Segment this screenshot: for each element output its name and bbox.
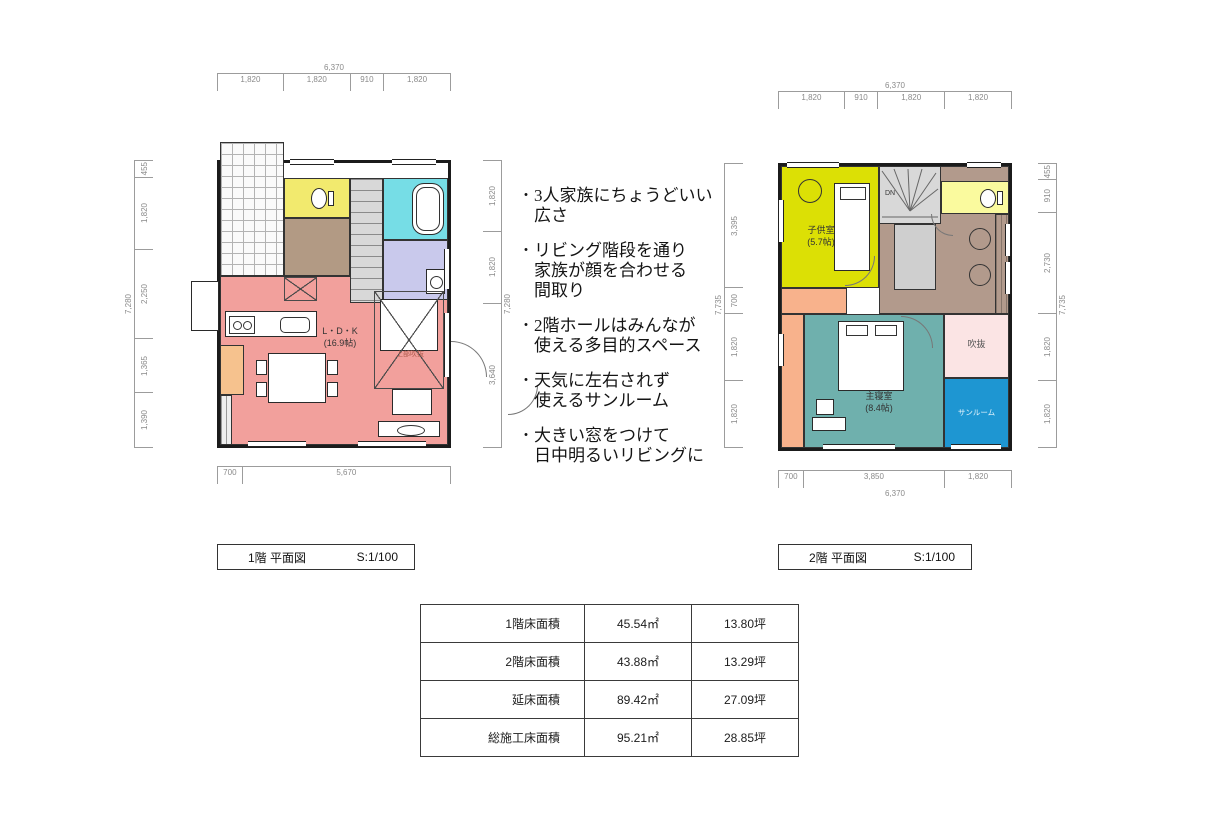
bullet: ・ (519, 426, 534, 466)
table-cell-tsubo: 27.09坪 (692, 681, 799, 719)
dim-value: 6,370 (778, 80, 1012, 91)
dim-value: 7,735 (1058, 295, 1067, 315)
table-cell-label: 1階床面積 (421, 605, 585, 643)
note-item: ・リビング階段を通り 家族が顔を合わせる 間取り (519, 241, 731, 301)
window (787, 162, 839, 168)
table-cell-sqm: 43.88㎡ (585, 643, 692, 681)
dim-value: 910 (351, 74, 384, 91)
note-text: 3人家族にちょうどいい 広さ (534, 186, 713, 226)
table-cell-label: 2階床面積 (421, 643, 585, 681)
tv-icon (397, 425, 425, 436)
stairs-1f (350, 178, 383, 303)
bed-master (838, 321, 904, 391)
bullet: ・ (519, 316, 534, 356)
ottoman (392, 389, 432, 415)
chair (256, 382, 267, 397)
window (778, 334, 784, 366)
dim-value: 3,395 (730, 216, 739, 236)
dim-value: 3,850 (804, 471, 945, 488)
table-cell-tsubo: 13.29坪 (692, 643, 799, 681)
dim-value: 1,820 (1043, 404, 1052, 424)
plan2-title-box: 2階 平面図 S:1/100 (778, 544, 972, 570)
dim-2f-top: 6,370 1,820 910 1,820 1,820 (778, 80, 1012, 109)
void-label: 吹抜 (944, 338, 1009, 350)
dim-value: 1,820 (217, 74, 284, 91)
chair (969, 264, 991, 286)
closet-horizontal (781, 288, 847, 314)
note-text: 大きい窓をつけて 日中明るいリビングに (534, 426, 704, 466)
pillow (875, 325, 897, 336)
dim-value: 7,280 (124, 294, 133, 314)
chair (798, 179, 822, 203)
dim-2f-left: 7,735 3,395 700 1,820 1,820 (713, 163, 743, 448)
room-bath (383, 178, 448, 240)
dim-value: 3,640 (488, 365, 497, 385)
toilet-icon (311, 188, 327, 209)
burner (243, 321, 252, 330)
master-label: 主寝室 (8.4帖) (839, 390, 919, 414)
pillow (846, 325, 868, 336)
dim-1f-left: 7,280 455 1,820 2,250 1,365 1,390 (123, 160, 153, 448)
washer-drum (430, 276, 443, 289)
area-table: 1階床面積 45.54㎡ 13.80坪 2階床面積 43.88㎡ 13.29坪 … (420, 604, 799, 757)
window (1005, 262, 1011, 294)
dim-1f-bottom: 700 5,670 (217, 466, 451, 484)
dim-value: 700 (217, 467, 243, 484)
dim-value: 1,820 (140, 203, 149, 223)
toilet-icon (980, 189, 996, 208)
room-entrance (220, 142, 284, 276)
chair (327, 382, 338, 397)
dim-2f-bottom: 700 3,850 1,820 6,370 (778, 470, 1012, 499)
table-cell-sqm: 89.42㎡ (585, 681, 692, 719)
dim-value: 910 (845, 92, 878, 109)
dim-value: 910 (1043, 189, 1052, 202)
dim-value: 6,370 (778, 488, 1012, 499)
dim-value: 1,820 (384, 74, 451, 91)
pillow (840, 187, 866, 200)
window (248, 441, 306, 447)
dim-value: 7,280 (503, 294, 512, 314)
dim-2f-right: 455 910 2,730 1,820 1,820 7,735 (1038, 163, 1068, 448)
cabinet (812, 417, 846, 431)
note-item: ・3人家族にちょうどいい 広さ (519, 186, 731, 226)
notes: ・3人家族にちょうどいい 広さ ・リビング階段を通り 家族が顔を合わせる 間取り… (519, 186, 731, 482)
window (951, 444, 1001, 450)
dim-value: 6,370 (217, 62, 451, 73)
bathtub-icon (412, 183, 444, 235)
window (967, 162, 1001, 168)
window (290, 159, 334, 165)
room-toilet-2f (941, 181, 1009, 214)
dim-value: 1,820 (284, 74, 351, 91)
dim-value: 1,820 (1043, 337, 1052, 357)
stairs-dn-label: DN (885, 190, 895, 197)
window (392, 159, 436, 165)
table-cell-tsubo: 28.85坪 (692, 719, 799, 757)
dim-value: 1,820 (488, 186, 497, 206)
dim-value: 1,390 (140, 410, 149, 430)
note-item: ・大きい窓をつけて 日中明るいリビングに (519, 426, 731, 466)
dim-value: 1,820 (945, 92, 1012, 109)
plan2-scale: S:1/100 (914, 550, 955, 564)
bathtub-inner (416, 187, 440, 231)
stove-icon (229, 316, 255, 334)
bullet: ・ (519, 371, 534, 411)
plan2-title: 2階 平面図 (809, 549, 867, 566)
table-row: 総施工床面積 95.21㎡ 28.85坪 (421, 719, 799, 757)
dim-value: 700 (730, 294, 739, 307)
dim-value: 1,820 (878, 92, 945, 109)
dim-value: 1,820 (730, 337, 739, 357)
dim-value: 455 (140, 162, 149, 175)
bullet: ・ (519, 241, 534, 301)
floor-plan-1f: L・D・K (16.9帖) 上部吹抜 (217, 160, 451, 448)
dim-value: 1,365 (140, 356, 149, 376)
plan1-title: 1階 平面図 (248, 549, 306, 566)
side-table (816, 399, 834, 415)
table-row: 2階床面積 43.88㎡ 13.29坪 (421, 643, 799, 681)
sunroom-label: サンルーム (944, 408, 1009, 418)
drawing-sheet: 6,370 1,820 1,820 910 1,820 7,280 455 1,… (0, 0, 1217, 837)
note-text: 2階ホールはみんなが 使える多目的スペース (534, 316, 701, 356)
side-porch (191, 281, 219, 331)
table-row: 延床面積 89.42㎡ 27.09坪 (421, 681, 799, 719)
toilet-tank-icon (328, 191, 334, 206)
room-hall-closet-1f (284, 218, 350, 276)
deck-hatch (220, 395, 232, 445)
dim-value: 1,820 (488, 257, 497, 277)
window (444, 313, 450, 377)
kids-room-label: 子供室 (5.7帖) (783, 224, 859, 248)
burner (233, 321, 242, 330)
dim-value: 700 (778, 471, 804, 488)
dim-value: 2,730 (1043, 253, 1052, 273)
dim-1f-top: 6,370 1,820 1,820 910 1,820 (217, 62, 451, 91)
bullet: ・ (519, 186, 534, 226)
tv-board (378, 421, 440, 437)
dim-value: 1,820 (945, 471, 1012, 488)
upper-void-label: 上部吹抜 (385, 349, 435, 359)
window (358, 441, 426, 447)
dim-value: 1,820 (730, 404, 739, 424)
table-row: 1階床面積 45.54㎡ 13.80坪 (421, 605, 799, 643)
window (1005, 224, 1011, 256)
window (444, 249, 450, 289)
dim-value: 1,820 (778, 92, 845, 109)
chair (327, 360, 338, 375)
table-cell-sqm: 95.21㎡ (585, 719, 692, 757)
table-cell-tsubo: 13.80坪 (692, 605, 799, 643)
dining-table (268, 353, 326, 403)
ldk-label: L・D・K (16.9帖) (290, 325, 390, 349)
window (823, 444, 895, 450)
stair-void-column (894, 224, 936, 290)
entrance-door-arc (451, 341, 487, 377)
closet-vertical (781, 314, 804, 448)
plan1-title-box: 1階 平面図 S:1/100 (217, 544, 415, 570)
kitchen-hood-void (284, 277, 317, 301)
dim-value: 2,250 (140, 284, 149, 304)
chair (256, 360, 267, 375)
chair (969, 228, 991, 250)
note-item: ・天気に左右されず 使えるサンルーム (519, 371, 731, 411)
note-text: 天気に左右されず 使えるサンルーム (534, 371, 670, 411)
room-toilet-1f (284, 178, 350, 218)
plan1-scale: S:1/100 (357, 550, 398, 564)
toilet-tank-icon (997, 191, 1003, 205)
table-cell-label: 延床面積 (421, 681, 585, 719)
window (778, 200, 784, 242)
dim-value: 7,735 (714, 295, 723, 315)
floor-plan-2f: DN 子供室 (5.7帖) (778, 163, 1012, 451)
note-item: ・2階ホールはみんなが 使える多目的スペース (519, 316, 731, 356)
dim-value: 5,670 (243, 467, 451, 484)
dim-value: 455 (1043, 165, 1052, 178)
table-cell-sqm: 45.54㎡ (585, 605, 692, 643)
note-text: リビング階段を通り 家族が顔を合わせる 間取り (534, 241, 687, 301)
table-cell-label: 総施工床面積 (421, 719, 585, 757)
room-pantry (220, 345, 244, 395)
